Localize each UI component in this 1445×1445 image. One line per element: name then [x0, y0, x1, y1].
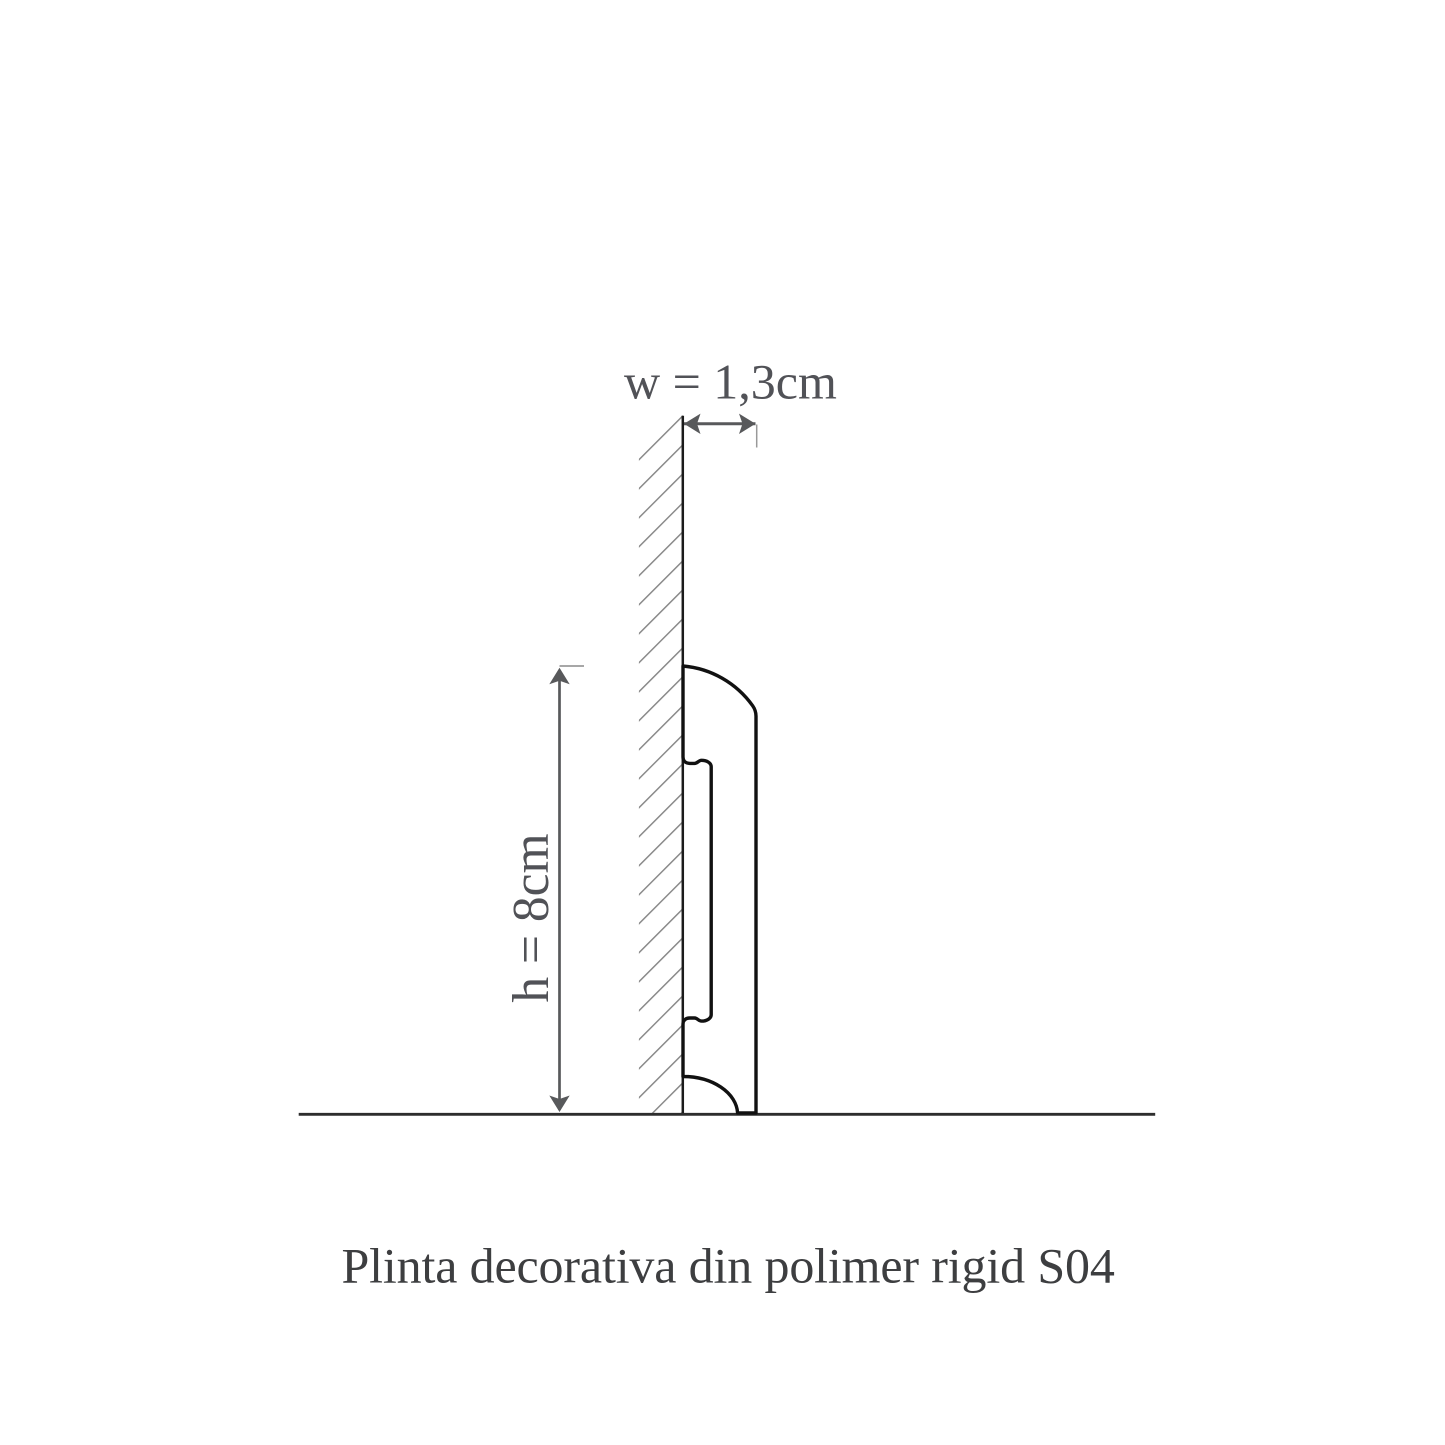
svg-text:h = 8cm: h = 8cm [503, 833, 560, 1002]
svg-text:Plinta decorativa din polimer: Plinta decorativa din polimer rigid S04 [342, 1237, 1115, 1293]
svg-text:w = 1,3cm: w = 1,3cm [624, 353, 837, 409]
